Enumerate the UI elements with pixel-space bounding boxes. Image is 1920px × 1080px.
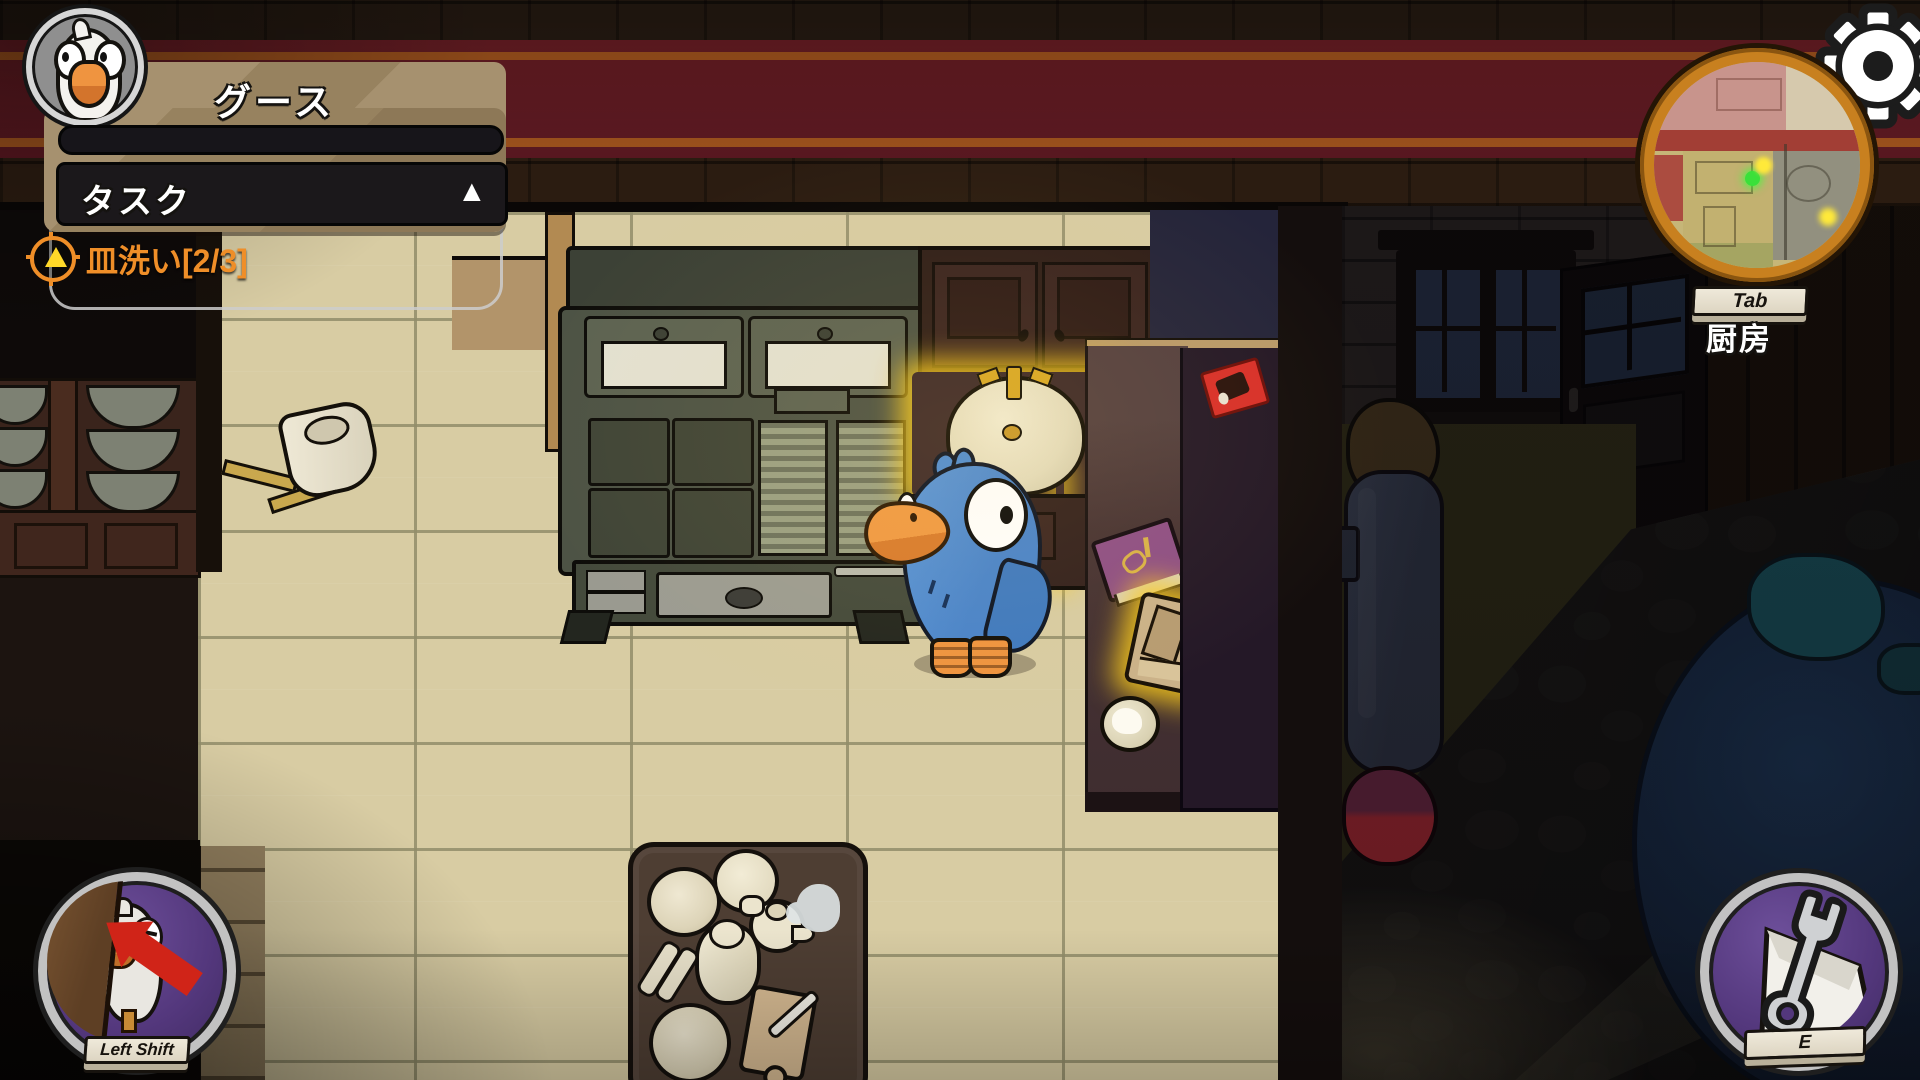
minimap-wall [1654,130,1860,151]
minimap[interactable] [1640,48,1874,282]
collapse-arrow-icon[interactable]: ▲ [457,175,487,209]
minimap-keycap: Tab [1691,286,1809,316]
serving-table [628,842,868,1080]
duck-character [872,452,1068,688]
minimap-room-hall [1786,62,1860,138]
cutting-board [738,984,818,1080]
duck-eye [964,478,1028,552]
task-label: 皿洗い [86,243,182,279]
duck-foot [968,636,1012,678]
plate [649,1003,731,1080]
minimap-player-dot [1745,171,1760,186]
game-screen: グース タスク ▲ 皿洗い[2/3] [0,0,1920,1080]
task-item[interactable]: 皿洗い[2/3] [30,236,248,282]
task-dropdown-label: タスク [81,174,192,223]
counter-end [1085,792,1185,812]
plate-stack [0,385,48,425]
use-key-label: E [1798,1032,1811,1054]
fridge [1180,348,1285,812]
minimap-task-dot [1819,208,1837,226]
task-marker-icon [30,236,76,282]
wall-divider [1278,206,1344,1080]
minimap-task-dot [1755,157,1772,174]
minimap-key-label: Tab [1732,290,1768,313]
task-dropdown[interactable]: タスク ▲ [56,162,508,226]
minimap-closet [1654,155,1683,221]
hide-key-label: Left Shift [99,1040,174,1060]
bowl [1100,696,1160,752]
player-name: グース [214,72,335,126]
progress-bar [58,125,504,155]
hide-keycap: Left Shift [83,1036,191,1064]
player-avatar [26,8,144,126]
dark-alcove [1150,210,1282,346]
task-count: [2/3] [182,243,248,279]
use-keycap: E [1744,1026,1867,1060]
steam-puff [796,884,840,932]
minimap-location: 厨房 [1706,314,1772,359]
fridge-magnet [1200,357,1271,420]
